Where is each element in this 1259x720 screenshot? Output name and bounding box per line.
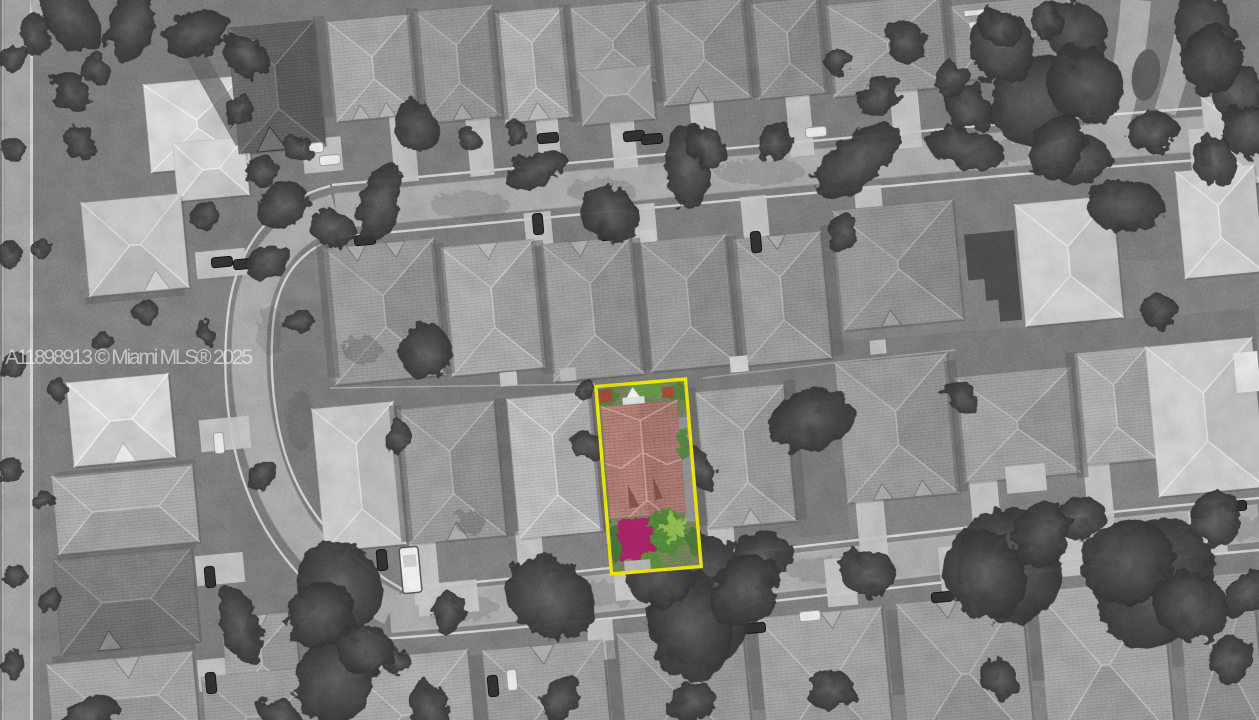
svg-text:A11898913 © Miami MLS® 2025: A11898913 © Miami MLS® 2025 [5, 346, 253, 369]
